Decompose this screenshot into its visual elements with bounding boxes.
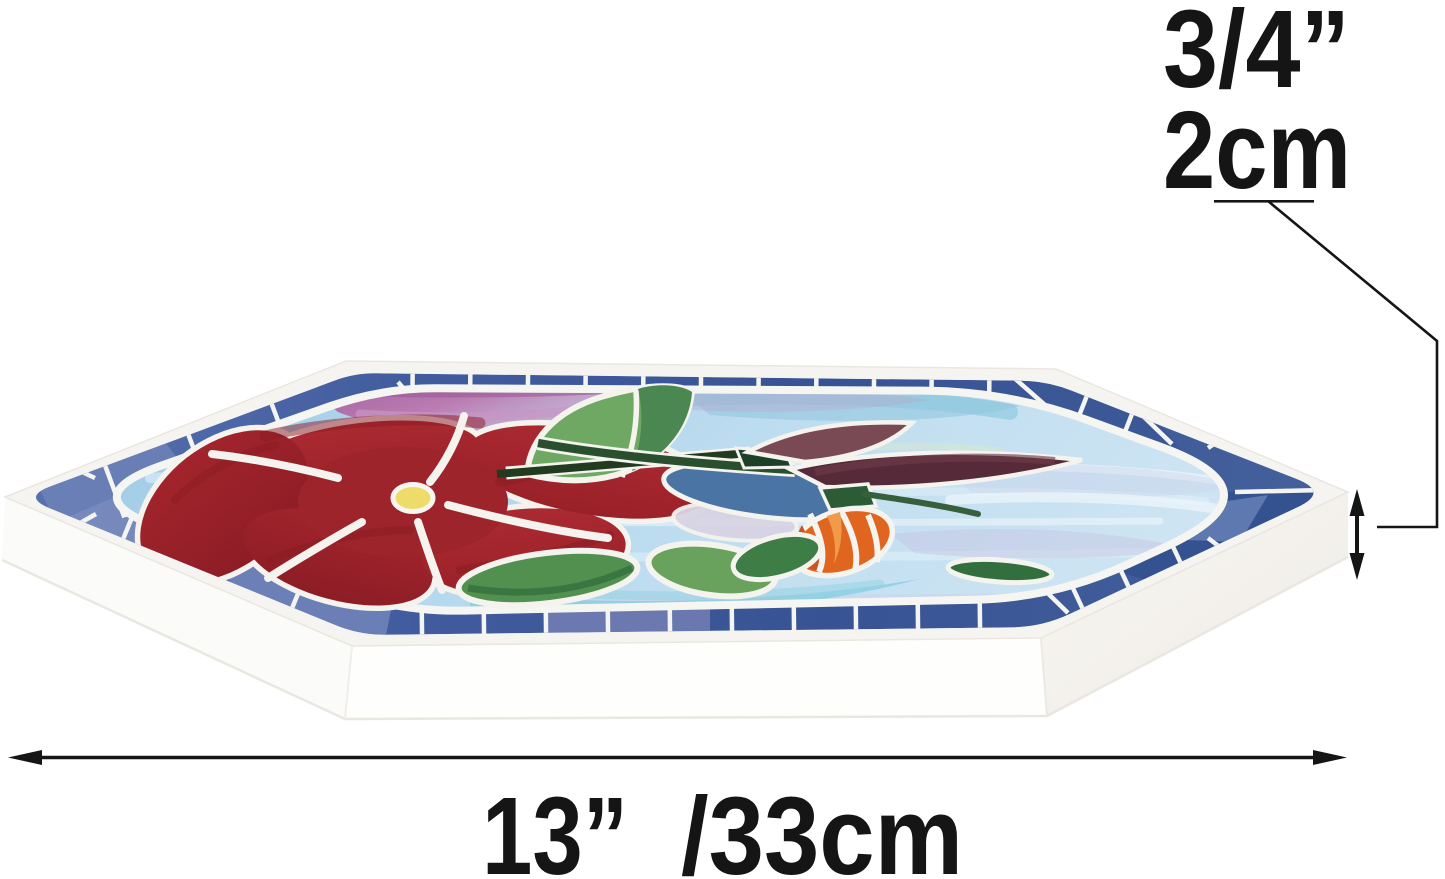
svg-text:13”: 13”: [482, 775, 628, 879]
svg-text:/33cm: /33cm: [681, 775, 963, 879]
svg-text:2cm: 2cm: [1163, 89, 1351, 212]
